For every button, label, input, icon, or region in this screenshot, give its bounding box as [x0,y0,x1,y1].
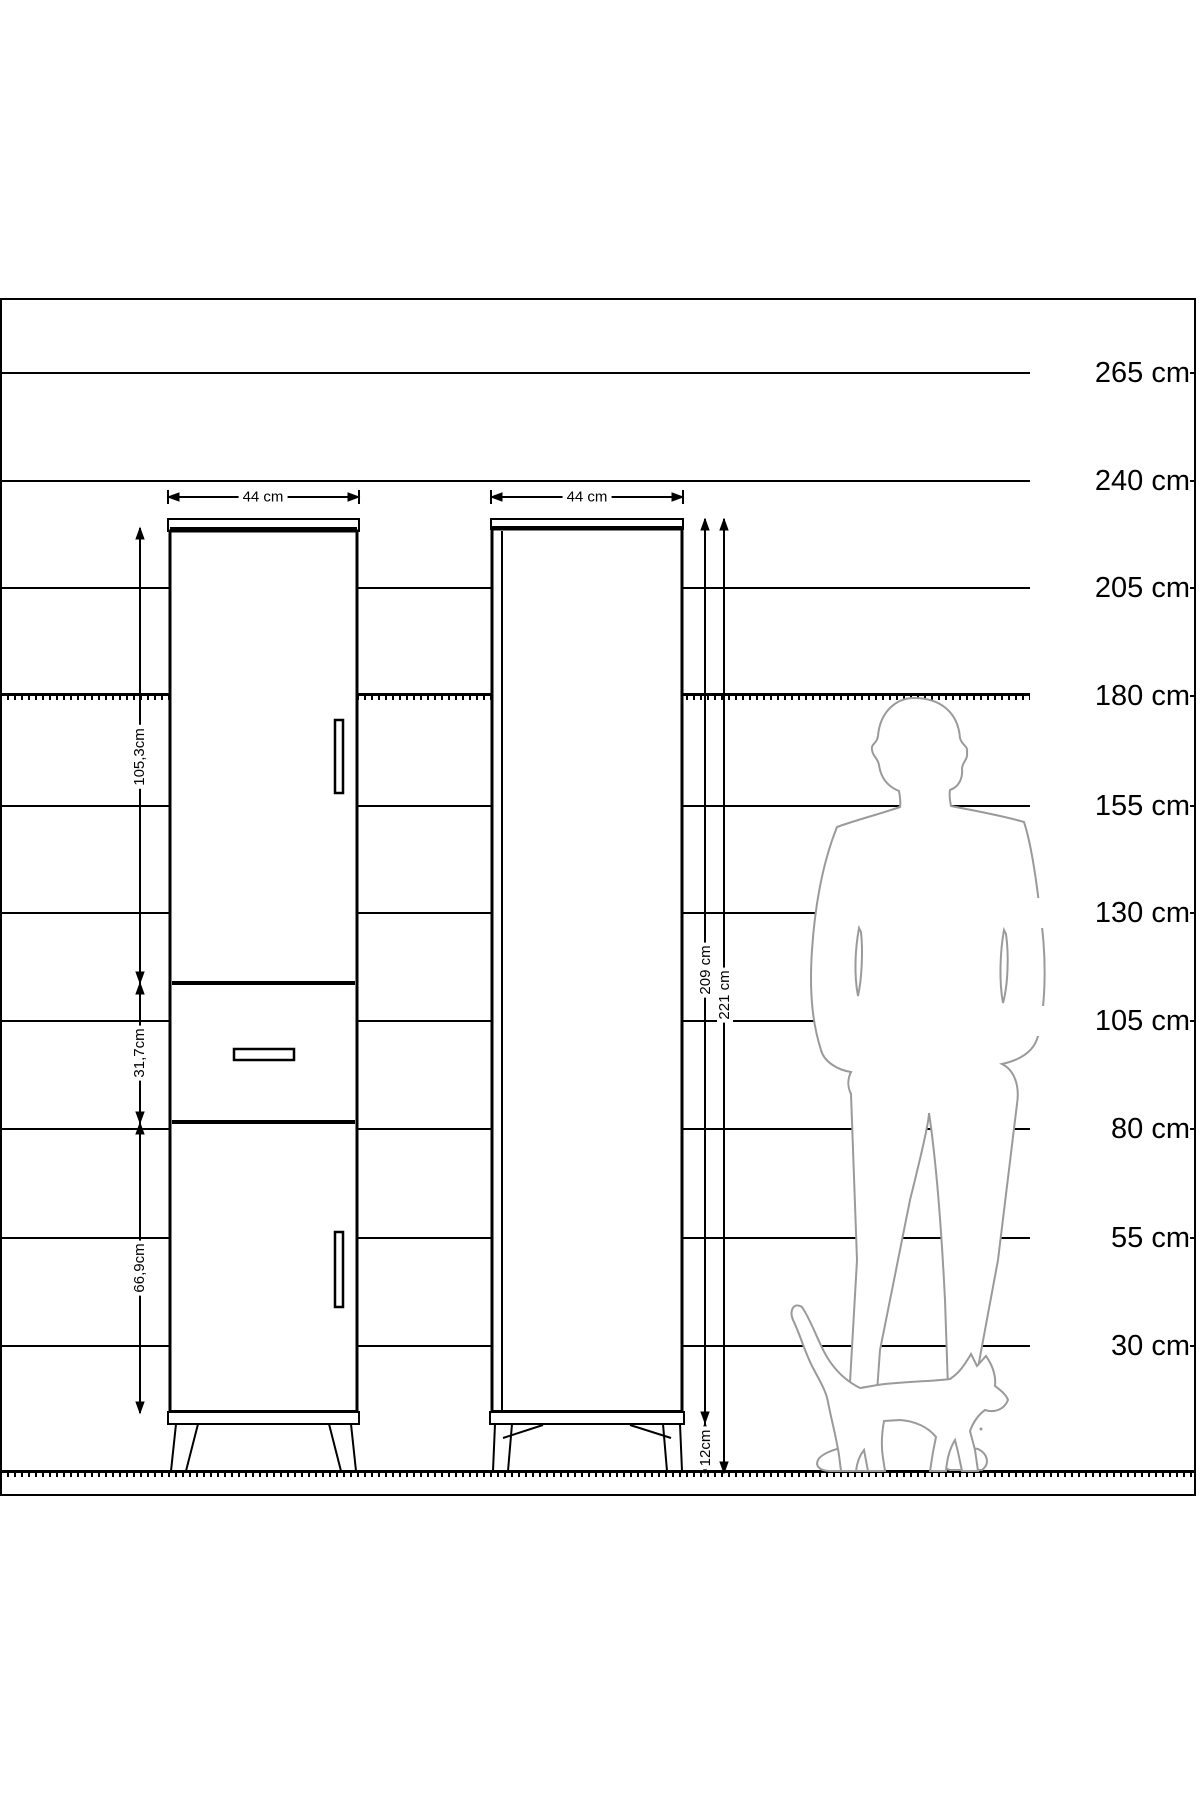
cat-mark-dot [980,1428,983,1431]
left-cabinet-plinth [168,1412,359,1424]
arrowhead [348,493,359,501]
left-cabinet-leg-right [329,1424,356,1471]
drawing-layer [0,0,1200,1800]
dimension-diagram: 265 cm 240 cm 205 cm 180 cm 155 cm 130 c… [0,0,1200,1800]
left-cabinet-upper-door-handle [335,720,343,793]
right-cabinet-leg-left [493,1424,512,1471]
left-cabinet-lower-door-handle [335,1232,343,1307]
left-cabinet-body [170,531,357,1412]
arrowhead [720,519,728,530]
right-cabinet-plinth [490,1412,684,1424]
arrowhead [720,1462,728,1473]
right-cabinet-leg-right [663,1424,682,1471]
arrowhead [136,972,144,983]
arrowhead [168,493,179,501]
arrowhead [701,1462,709,1473]
arrowhead [701,519,709,530]
arrowhead [701,1423,709,1434]
man-silhouette [811,698,1045,1471]
arrowhead [136,1112,144,1123]
arrowhead [672,493,683,501]
left-cabinet-drawer-bottom-line [172,1120,355,1124]
arrowhead [136,1402,144,1413]
right-cabinet [490,519,684,1471]
left-cabinet [168,519,359,1471]
arrowhead [491,493,502,501]
left-cabinet-drawer-handle [234,1049,294,1060]
arrowhead [136,528,144,539]
right-cabinet-body [492,529,682,1412]
left-cabinet-leg-left [171,1424,198,1471]
arrowhead [136,983,144,994]
arrowhead [701,1412,709,1423]
left-cabinet-drawer-top-line [172,981,355,985]
man-outline [811,698,1045,1471]
arrowhead [136,1123,144,1134]
